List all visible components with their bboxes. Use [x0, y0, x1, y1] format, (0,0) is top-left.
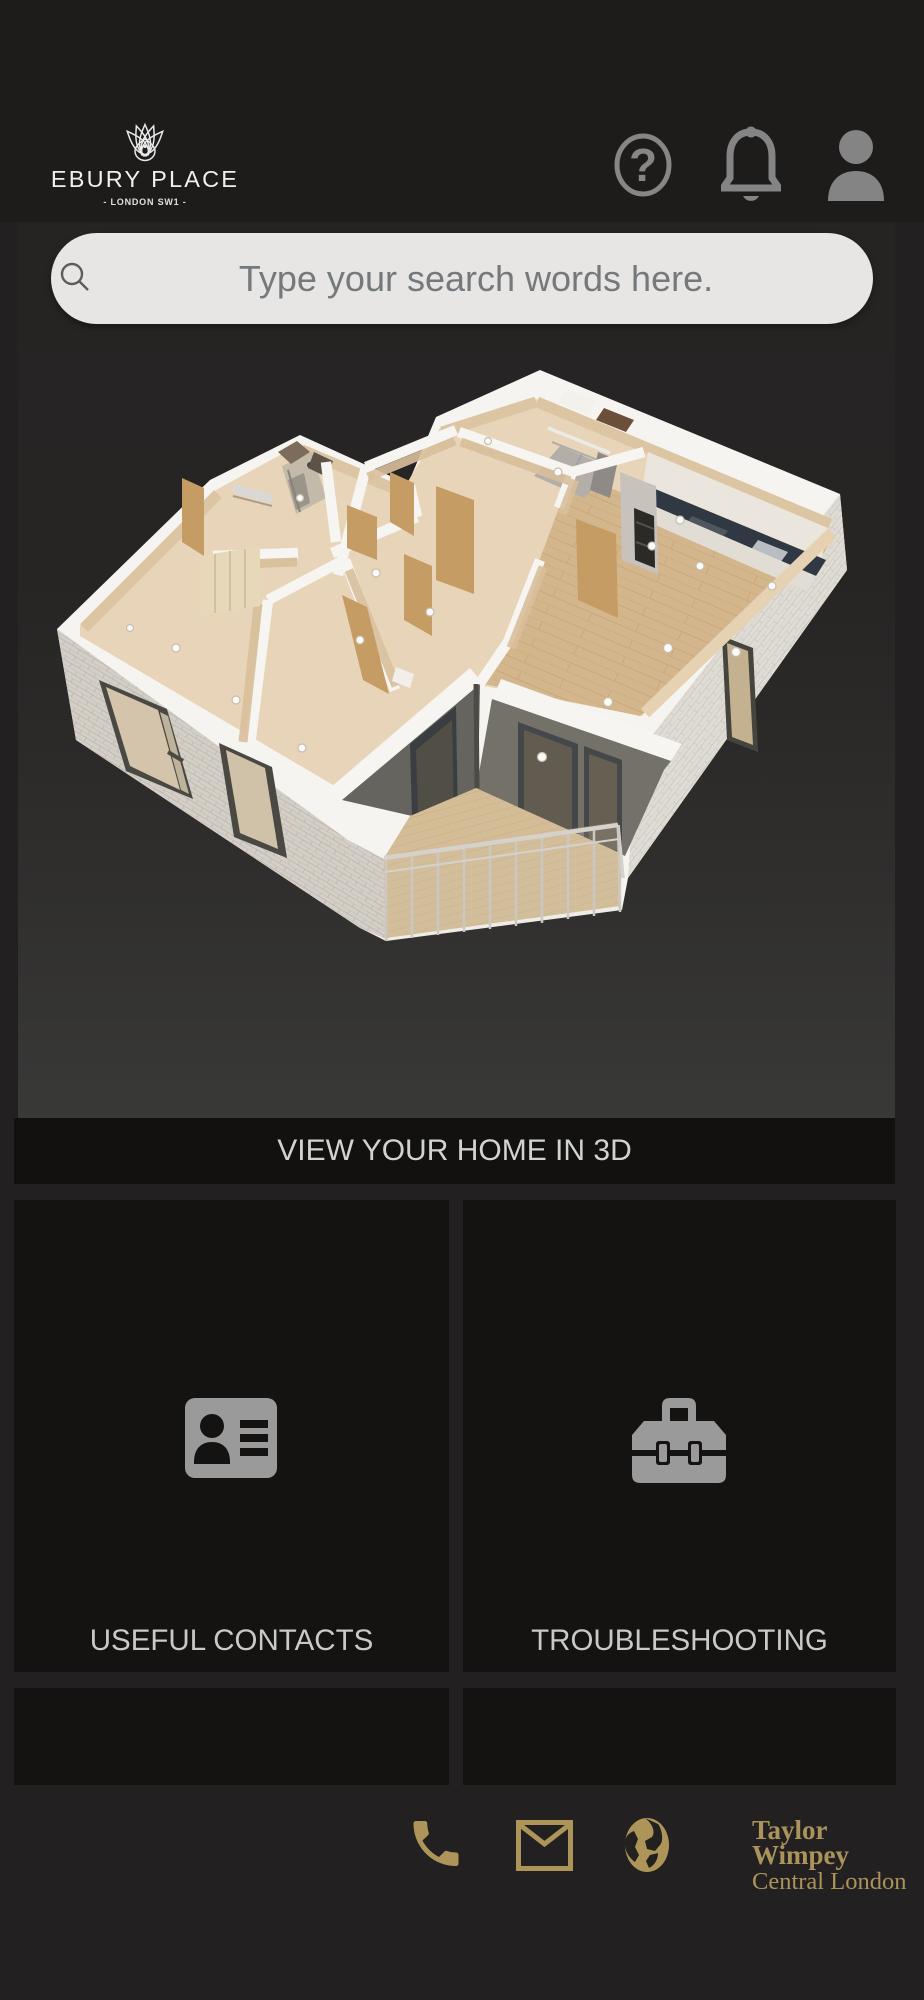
svg-text:?: ?	[629, 139, 657, 191]
